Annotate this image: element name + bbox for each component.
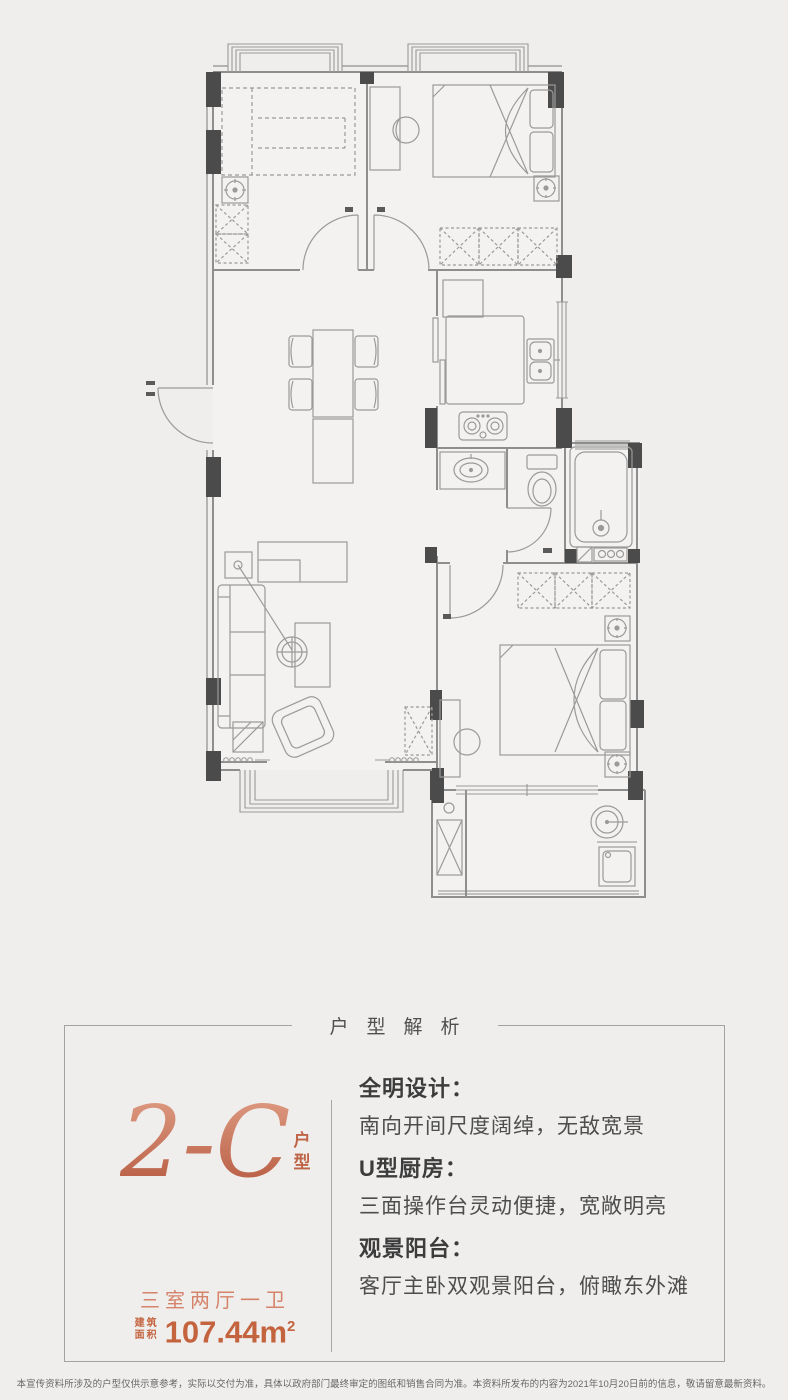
disclaimer-text: 本宣传资料所涉及的户型仅供示意参考，实际以交付为准，具体以政府部门最终审定的图纸… (0, 1376, 788, 1390)
area-value: 107.44m2 (165, 1312, 296, 1347)
vertical-divider (331, 1100, 332, 1352)
analysis-panel: 户型解析 2-C 户 型 三室两厅一卫 建筑 面积 107.44m2 (64, 1025, 725, 1362)
feature-desc: 南向开间尺度阔绰，无敌宽景 (359, 1116, 709, 1138)
feature-title: 全明设计： (359, 1078, 709, 1100)
floor-plan-drawing (0, 0, 788, 985)
feature-desc: 三面操作台灵动便捷，宽敞明亮 (359, 1196, 709, 1218)
unit-suffix: 户 型 (294, 1130, 311, 1174)
entry-door (158, 388, 213, 443)
area-label: 建筑 面积 (135, 1318, 159, 1342)
unit-suffix-char: 户 (294, 1130, 311, 1152)
unit-name-graphic: 2-C (120, 1084, 290, 1199)
feature-desc: 客厅主卧双观景阳台，俯瞰东外滩 (359, 1276, 709, 1298)
unit-spec: 三室两厅一卫 (95, 1284, 335, 1313)
apartment-floor (213, 72, 645, 897)
floor-plan-flyer: { "page": {"background": "#efeeec"}, "co… (0, 0, 788, 1400)
unit-suffix-char: 型 (294, 1152, 311, 1174)
unit-area: 建筑 面积 107.44m2 (95, 1312, 335, 1347)
unit-block: 2-C 户 型 三室两厅一卫 建筑 面积 107.44m2 (95, 1084, 335, 1199)
feature-title: 观景阳台： (359, 1238, 709, 1260)
feature-list: 全明设计： 南向开间尺度阔绰，无敌宽景 U型厨房： 三面操作台灵动便捷，宽敞明亮… (359, 1078, 709, 1318)
unit-name: 2-C (120, 1086, 290, 1199)
panel-title: 户型解析 (291, 1012, 497, 1039)
feature-title: U型厨房： (359, 1158, 709, 1180)
